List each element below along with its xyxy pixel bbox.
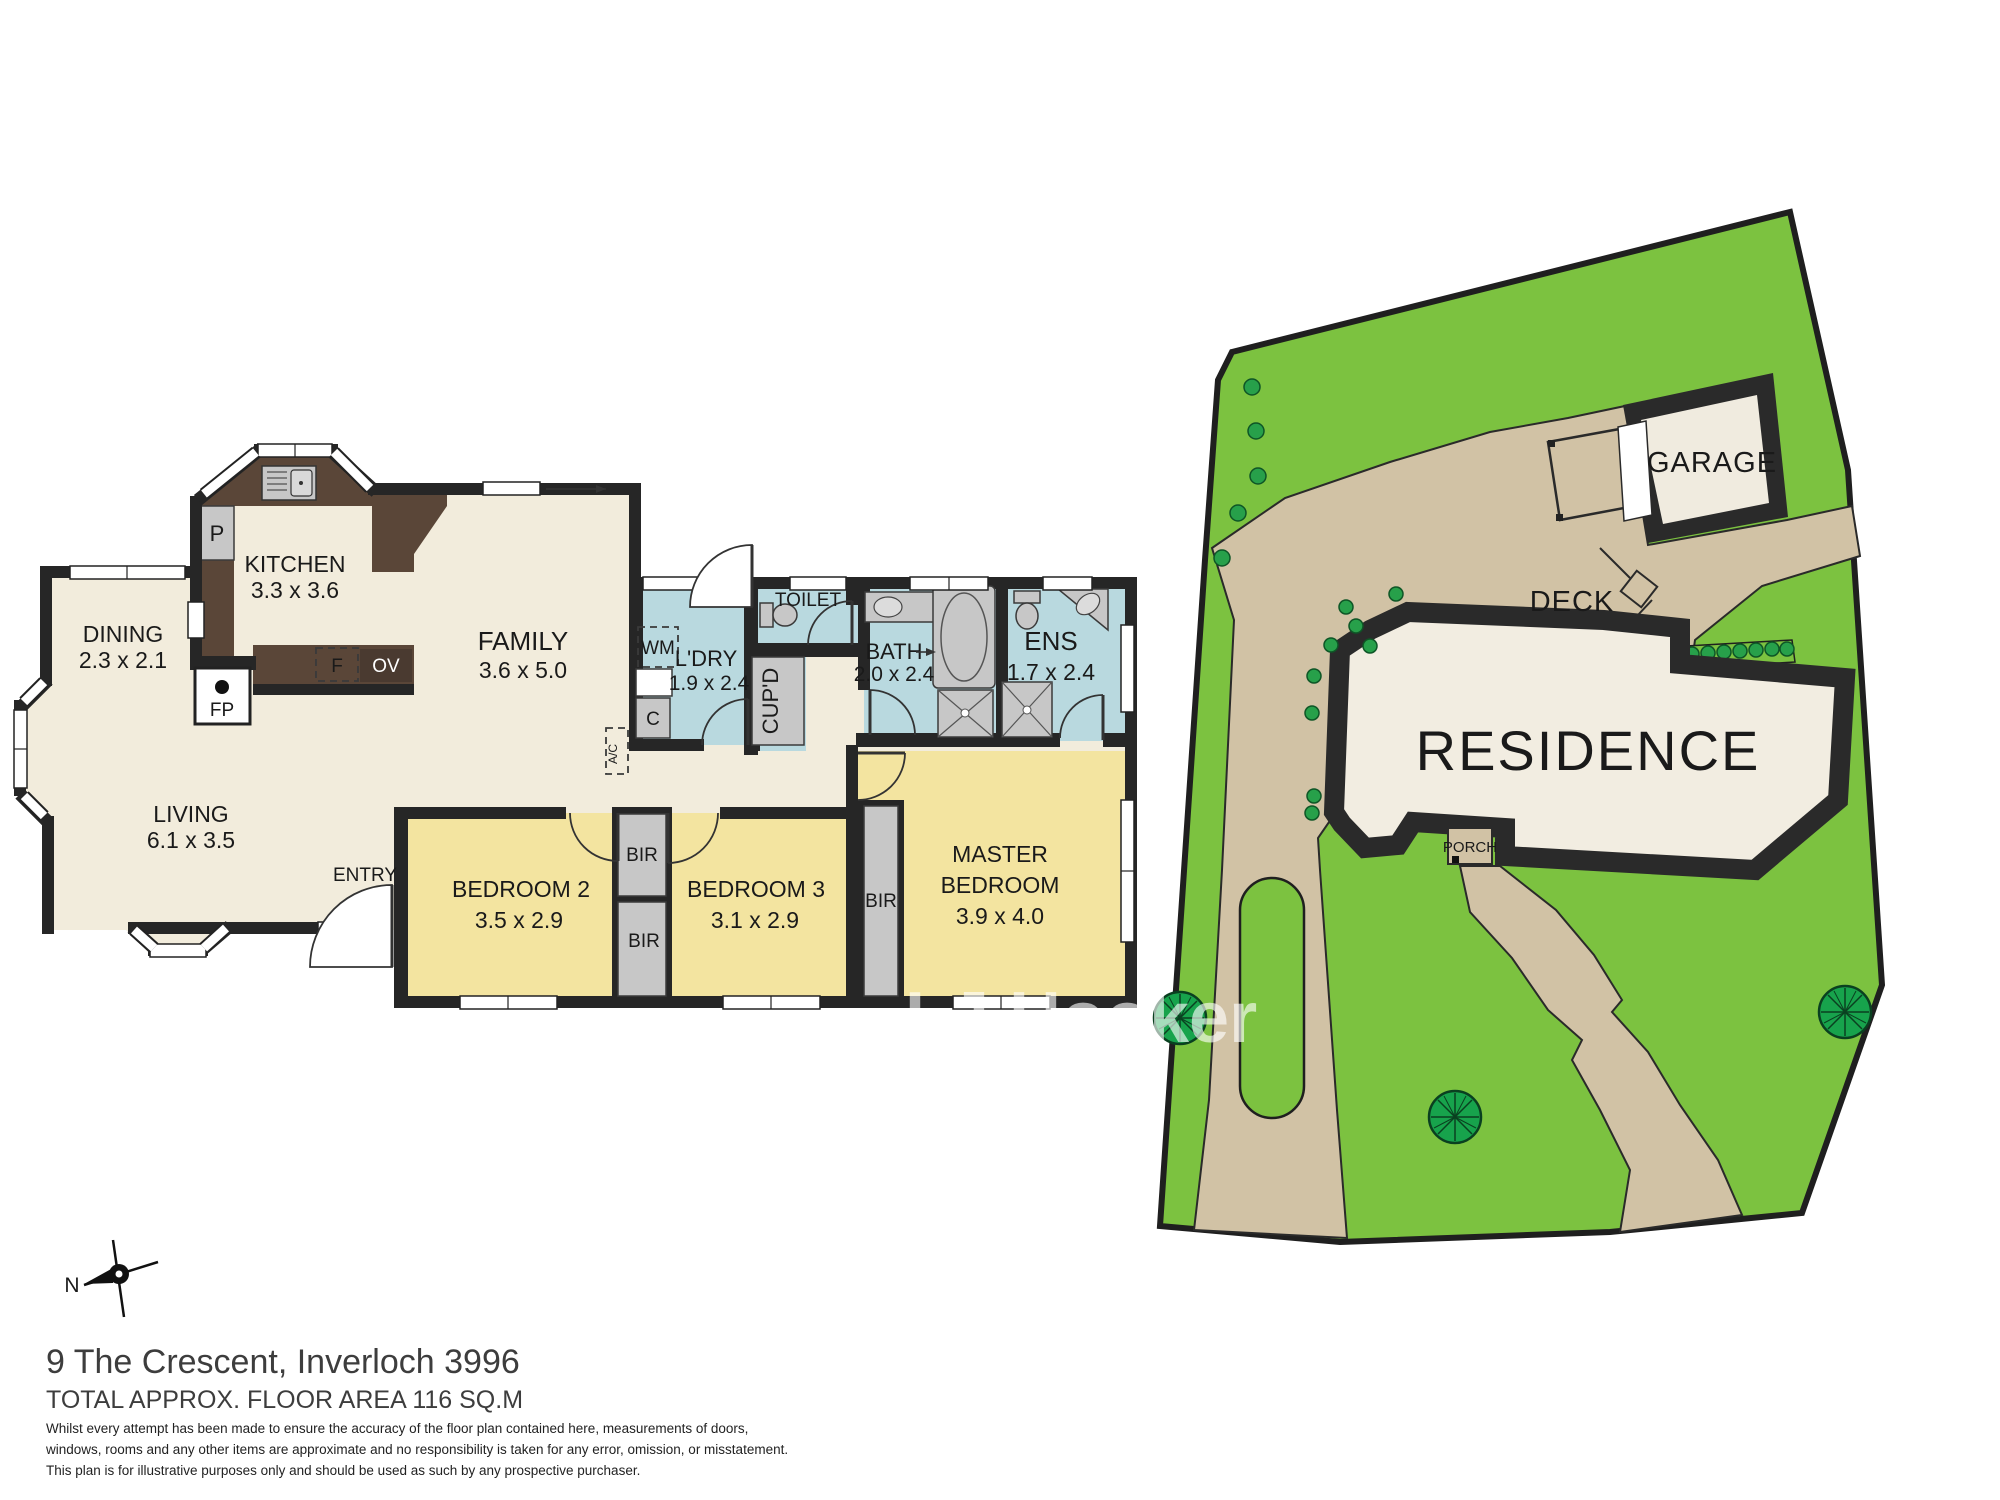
- label-bed3: BEDROOM 3: [687, 876, 825, 902]
- label-deck: DECK: [1530, 586, 1615, 618]
- label-garage: GARAGE: [1647, 447, 1777, 479]
- dims-dining: 2.3 x 2.1: [79, 647, 167, 673]
- disclaimer-line-1: Whilst every attempt has been made to en…: [46, 1421, 748, 1436]
- label-bed2: BEDROOM 2: [452, 876, 590, 902]
- label-washer: WM: [641, 638, 675, 659]
- laundry-door: [690, 545, 752, 607]
- tree-icon: [1429, 1091, 1481, 1143]
- label-trough: C: [646, 709, 660, 730]
- disclaimer-line-2: windows, rooms and any other items are a…: [45, 1442, 788, 1457]
- floorplan-page: DINING 2.3 x 2.1 KITCHEN 3.3 x 3.6 FAMIL…: [0, 0, 2000, 1500]
- label-ldry: L'DRY: [675, 646, 738, 671]
- compass-north-label: N: [64, 1274, 79, 1297]
- label-kitchen: KITCHEN: [245, 551, 346, 577]
- plan-canvas: DINING 2.3 x 2.1 KITCHEN 3.3 x 3.6 FAMIL…: [0, 0, 2000, 1500]
- label-entry: ENTRY: [333, 865, 397, 886]
- dims-master: 3.9 x 4.0: [956, 903, 1044, 929]
- label-bir-1: BIR: [626, 845, 658, 866]
- label-bir-2: BIR: [628, 931, 660, 952]
- watermark-logo: LJ Hooker: [905, 978, 1257, 1058]
- label-bath: BATH: [865, 639, 922, 664]
- dims-kitchen: 3.3 x 3.6: [251, 577, 339, 603]
- label-living: LIVING: [153, 801, 228, 827]
- label-toilet: TOILET: [775, 590, 842, 611]
- label-residence: RESIDENCE: [1416, 719, 1761, 782]
- label-porch: PORCH: [1443, 839, 1497, 856]
- tree-icon: [1819, 986, 1871, 1038]
- floor-area-total: TOTAL APPROX. FLOOR AREA 116 SQ.M: [46, 1386, 523, 1414]
- label-pantry: P: [210, 521, 225, 546]
- dims-family: 3.6 x 5.0: [479, 657, 567, 683]
- property-address: 9 The Crescent, Inverloch 3996: [46, 1343, 520, 1381]
- site-plan: GARAGE DECK RESIDENCE PORCH: [1154, 212, 1882, 1242]
- label-dining: DINING: [83, 621, 164, 647]
- kitchen-sink-icon: [262, 466, 316, 500]
- label-aircon: A/C: [606, 744, 620, 764]
- label-family: FAMILY: [478, 626, 569, 656]
- dims-bed2: 3.5 x 2.9: [475, 907, 563, 933]
- label-ens: ENS: [1024, 626, 1077, 656]
- label-fireplace: FP: [210, 700, 234, 721]
- label-master-2: BEDROOM: [941, 872, 1060, 898]
- disclaimer-line-3: This plan is for illustrative purposes o…: [46, 1463, 640, 1478]
- floor-plan: DINING 2.3 x 2.1 KITCHEN 3.3 x 3.6 FAMIL…: [14, 444, 1137, 1009]
- dims-bed3: 3.1 x 2.9: [711, 907, 799, 933]
- label-oven: OV: [372, 656, 400, 677]
- dims-bath: 2.0 x 2.4: [854, 663, 935, 686]
- label-fridge: F: [331, 656, 343, 677]
- label-master-1: MASTER: [952, 841, 1048, 867]
- dims-ens: 1.7 x 2.4: [1007, 659, 1095, 685]
- laundry-trough: [636, 669, 672, 696]
- dims-ldry: 1.9 x 2.4: [669, 672, 750, 695]
- dims-living: 6.1 x 3.5: [147, 827, 235, 853]
- footer: 9 The Crescent, Inverloch 3996 TOTAL APP…: [45, 1343, 788, 1478]
- label-cupd: CUP'D: [758, 668, 783, 735]
- label-bir-master: BIR: [865, 891, 897, 912]
- compass-icon: N: [64, 1240, 158, 1317]
